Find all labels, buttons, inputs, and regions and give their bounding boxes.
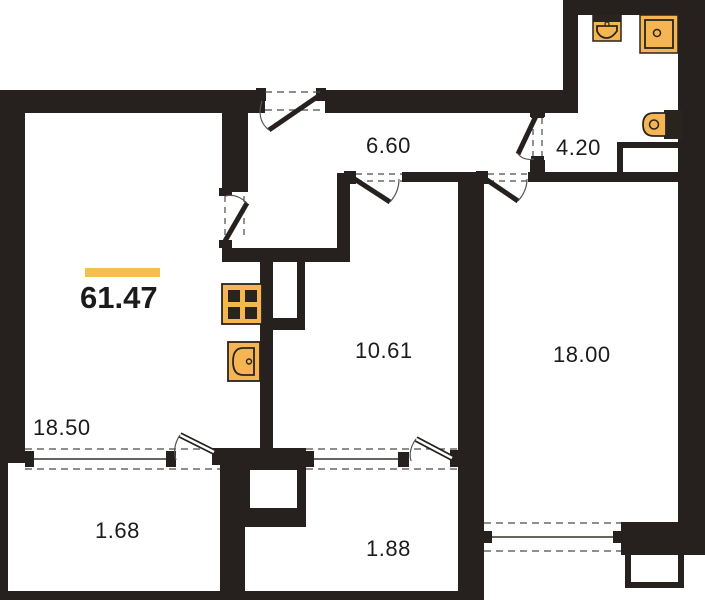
- window-jamb: [483, 531, 492, 543]
- wall: [402, 172, 482, 182]
- stove-burner: [228, 307, 240, 319]
- door-leaf: [269, 95, 320, 130]
- kitchen-area-label: 10.61: [355, 338, 413, 363]
- wall: [260, 318, 305, 330]
- wall: [458, 182, 484, 591]
- washbasin-icon: [593, 15, 621, 41]
- wall: [222, 248, 350, 262]
- hallway-area-label: 6.60: [366, 133, 411, 158]
- wall: [220, 448, 245, 591]
- wall: [337, 173, 350, 256]
- total-area-label: 61.47: [80, 280, 158, 315]
- kitchen-sink-icon: [228, 342, 260, 381]
- wall: [325, 90, 578, 113]
- balcony-left-label: 1.68: [95, 518, 140, 543]
- wall: [678, 0, 705, 555]
- wall: [0, 90, 25, 463]
- wall: [0, 591, 484, 600]
- living-area-label: 18.50: [33, 415, 91, 440]
- door-leaf: [353, 178, 390, 202]
- wall: [617, 142, 680, 148]
- wall: [297, 262, 305, 320]
- balcony-right-door: [410, 439, 452, 461]
- stove-burner: [245, 307, 257, 319]
- ac-basket: [631, 553, 678, 582]
- bedroom-area-label: 18.00: [553, 342, 611, 367]
- wall: [617, 148, 623, 174]
- window-jamb: [25, 451, 34, 467]
- bathroom-door: [518, 110, 544, 164]
- living-room-door: [219, 188, 247, 248]
- stove-burner: [228, 290, 240, 302]
- wall: [621, 522, 684, 555]
- toilet-icon: [643, 110, 682, 139]
- door-swing-arc: [518, 179, 527, 201]
- window-jamb: [450, 450, 462, 467]
- stove-icon: [222, 284, 262, 324]
- floor-plan: 61.47 6.60 4.20 10.61 18.00 18.50 1.68 1…: [0, 0, 705, 600]
- washbasin-faucet: [605, 22, 609, 26]
- balcony-right-label: 1.88: [366, 536, 411, 561]
- balcony-left-door: [175, 435, 214, 460]
- wall: [222, 108, 248, 192]
- wall: [528, 172, 680, 182]
- bathroom-area-label: 4.20: [556, 135, 601, 160]
- labels: 61.47 6.60 4.20 10.61 18.00 18.50 1.68 1…: [33, 133, 611, 561]
- door-swing-arc: [175, 435, 180, 460]
- door-swing-arc: [410, 439, 416, 461]
- window-jamb: [613, 531, 621, 543]
- entry-door: [256, 88, 326, 130]
- door-leaf-core: [416, 439, 452, 458]
- door-swing-arc: [390, 179, 399, 202]
- floor-plan-canvas: 61.47 6.60 4.20 10.61 18.00 18.50 1.68 1…: [0, 0, 705, 600]
- duct-niche: [250, 470, 297, 508]
- kitchen-door: [344, 171, 402, 202]
- wall: [0, 463, 8, 600]
- door-jamb: [531, 156, 544, 164]
- window-jamb: [304, 451, 314, 467]
- shower-icon: [640, 15, 678, 53]
- total-area-accent-bar: [85, 268, 160, 277]
- stove-burner: [245, 290, 257, 302]
- toilet-bowl: [643, 113, 666, 136]
- washbasin-back: [593, 15, 621, 22]
- door-jamb: [256, 88, 266, 101]
- window-jamb: [398, 452, 409, 467]
